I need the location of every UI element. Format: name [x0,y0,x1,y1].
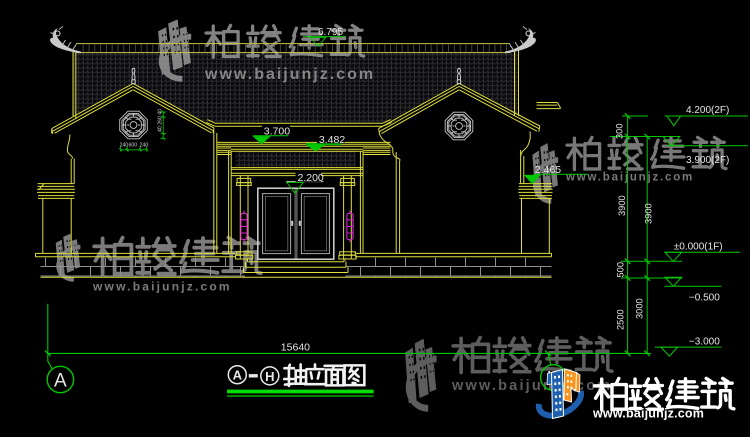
svg-text:A: A [233,368,243,383]
svg-text:240: 240 [120,142,129,148]
svg-text:40 260 40: 40 260 40 [158,109,164,132]
svg-text:240: 240 [140,142,149,148]
svg-text:www.baijunjz.com: www.baijunjz.com [92,280,232,294]
svg-text:2500: 2500 [616,309,626,330]
svg-text:−3.000: −3.000 [689,337,720,348]
svg-text:2.465: 2.465 [535,164,561,176]
svg-text:300: 300 [615,123,625,139]
svg-text:3900: 3900 [644,203,654,224]
svg-text:3900: 3900 [617,195,627,216]
svg-text:www.baijunjz.com: www.baijunjz.com [451,378,612,394]
svg-text:500: 500 [616,262,626,278]
svg-text:H: H [265,369,274,384]
svg-text:2.200: 2.200 [298,172,324,184]
svg-text:−0.500: −0.500 [689,293,720,304]
svg-text:15640: 15640 [281,342,310,354]
svg-text:A: A [54,371,67,392]
svg-text:4.200(2F): 4.200(2F) [686,105,729,116]
svg-text:www.baijunjz.com: www.baijunjz.com [565,172,694,184]
svg-text:www.baijunjz.com: www.baijunjz.com [592,407,704,421]
svg-text:3.482: 3.482 [319,134,345,146]
svg-text:www.baijunjz.com: www.baijunjz.com [204,66,375,83]
svg-text:3.700: 3.700 [264,126,290,138]
svg-text:6.795: 6.795 [318,27,343,38]
svg-text:3000: 3000 [635,298,645,319]
svg-text:600: 600 [129,142,138,148]
svg-text:±0.000(1F): ±0.000(1F) [674,242,723,253]
svg-text:3.900(2F): 3.900(2F) [686,155,729,166]
